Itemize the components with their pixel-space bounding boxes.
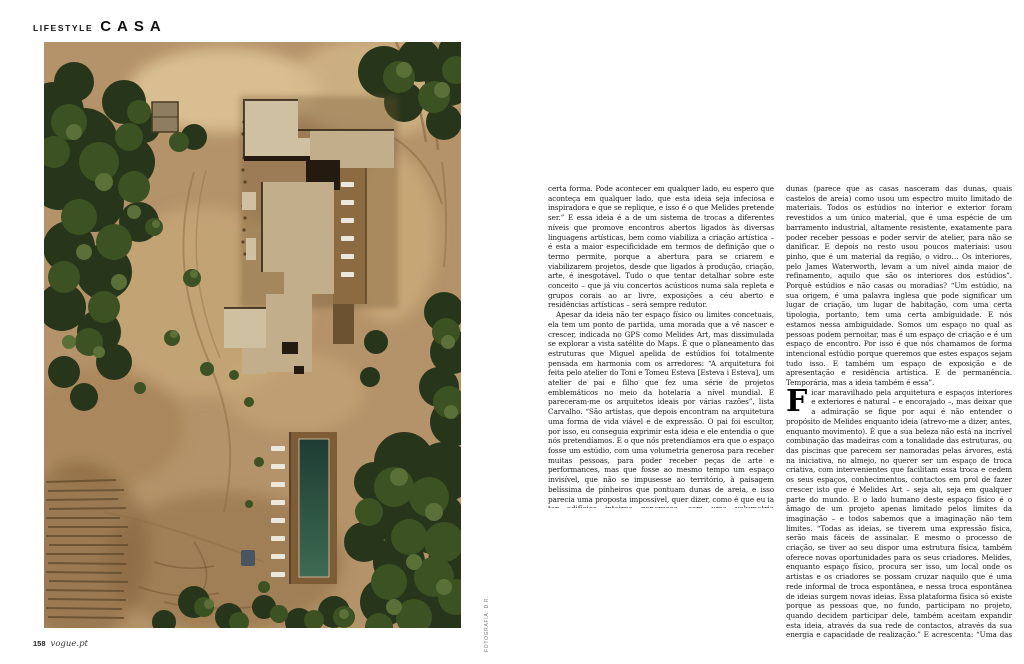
category-label: CASA <box>100 18 167 35</box>
magazine-name: vogue.pt <box>51 639 88 649</box>
magazine-page: LIFESTYLE CASA <box>0 0 1024 664</box>
paragraph: dunas (parece que as casas nasceram das … <box>786 184 1012 388</box>
paragraph-text: icar maravilhado pela arquitetura e espa… <box>786 388 1012 641</box>
drop-cap: F <box>786 388 811 415</box>
photo-credit: FOTOGRAFIA: D.R. <box>484 596 490 652</box>
footer: 158 vogue.pt <box>33 639 88 649</box>
paragraph-dropcap: Ficar maravilhado pela arquitetura e esp… <box>786 388 1012 641</box>
page-number: 158 <box>33 639 46 648</box>
house-roof-lower <box>266 294 312 372</box>
paragraph: Apesar da ideia não ter espaço físico ou… <box>548 310 774 508</box>
article-column-2: dunas (parece que as casas nasceram das … <box>786 184 1012 641</box>
parked-vehicle <box>241 550 255 566</box>
article-column-1: certa forma. Pode acontecer em qualquer … <box>548 184 774 508</box>
aerial-photo <box>44 42 461 628</box>
header: LIFESTYLE CASA <box>33 18 167 35</box>
paragraph: certa forma. Pode acontecer em qualquer … <box>548 184 774 310</box>
pool-water <box>299 439 329 577</box>
aerial-photo-graphic <box>44 42 461 628</box>
shed <box>152 102 178 132</box>
section-label: LIFESTYLE <box>33 23 93 33</box>
